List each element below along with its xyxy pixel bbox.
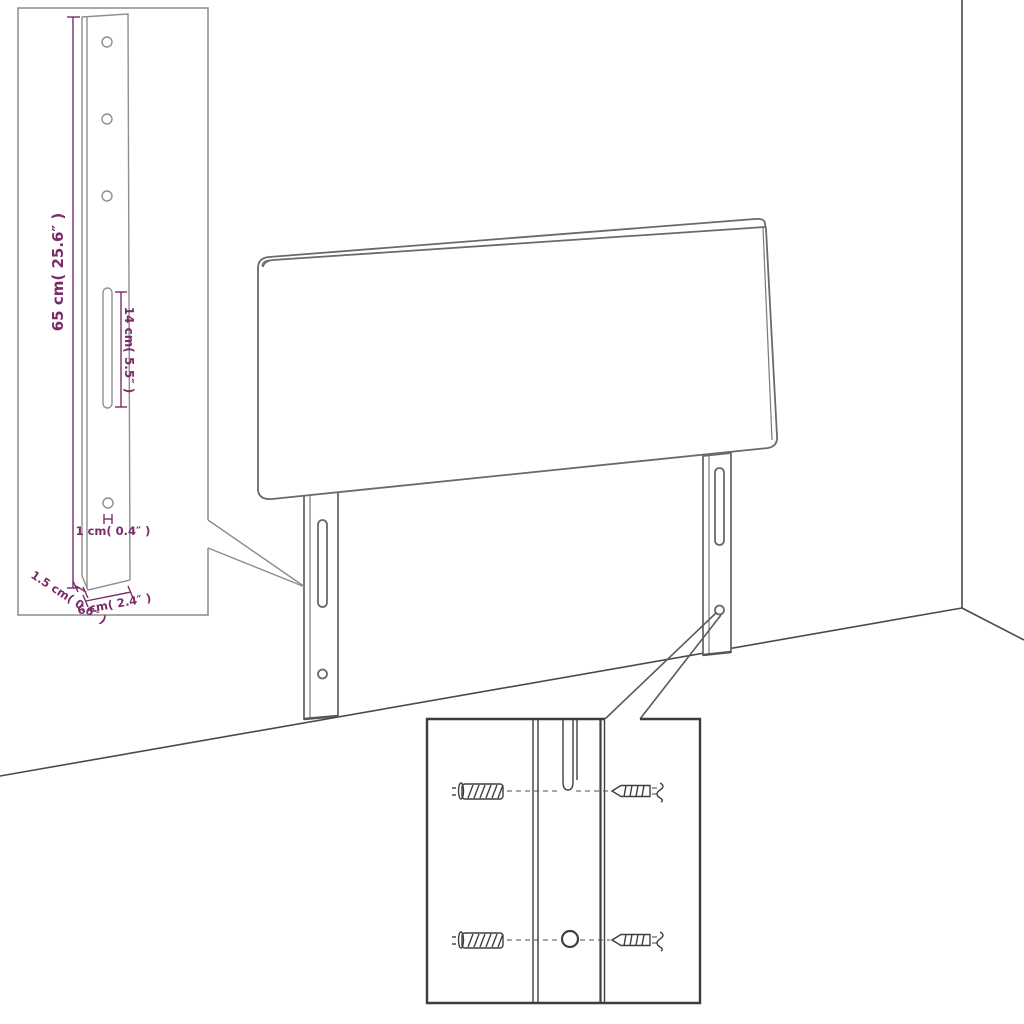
bracket-outline [82,14,130,590]
left-leg-body [304,492,338,719]
floor-line-right [962,608,1024,640]
bracket-drawing [82,14,130,590]
dimension-hole-label: 1 cm( 0.4″ ) [76,524,151,538]
diagram-canvas: 65 cm( 25.6″ ) 14 cm( 5.5″ ) 1 cm( 0.4″ … [0,0,1024,1024]
headboard-panel [258,219,777,499]
dimension-height-label: 65 cm( 25.6″ ) [49,213,67,331]
panel-outline [258,219,777,499]
right-leg-body [703,453,731,655]
headboard-left-leg [304,492,338,719]
mounting-detail-inset [427,613,721,1003]
headboard-dimension-diagram: 65 cm( 25.6″ ) 14 cm( 5.5″ ) 1 cm( 0.4″ … [0,0,1024,1024]
dimension-slot-label: 14 cm( 5.5″ ) [122,307,136,393]
bracket-inset-callout-lines [208,520,305,587]
headboard-right-leg [703,453,731,655]
